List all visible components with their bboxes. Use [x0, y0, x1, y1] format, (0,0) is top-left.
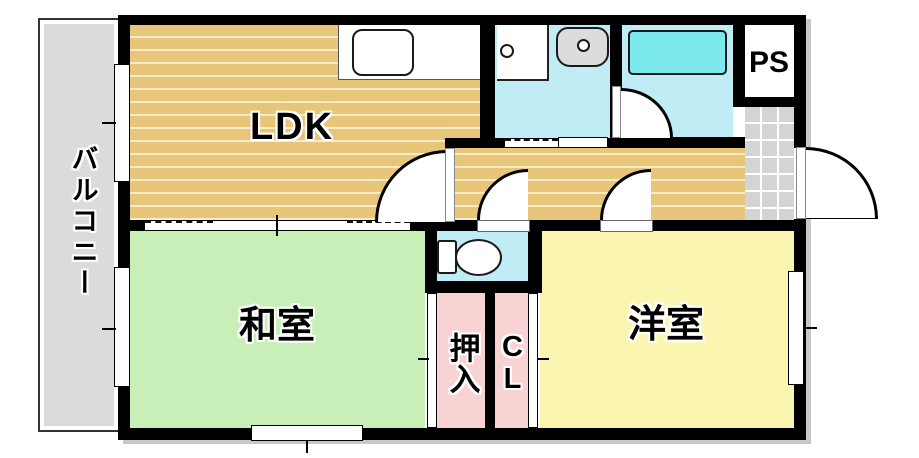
window-western-right — [788, 271, 804, 385]
ldk-label: LDK — [250, 108, 334, 146]
western-door-threshold — [600, 220, 653, 232]
entry-tile-floor — [745, 107, 794, 222]
wall-outer-bottom — [118, 428, 806, 440]
wall-oshiire-closet — [485, 293, 495, 428]
oshiire-sliding-tick — [418, 358, 429, 360]
window-japanese-left-tick — [102, 328, 116, 330]
entrance-door-leaf — [796, 147, 806, 219]
sliding-rail-left — [145, 221, 213, 230]
wall-outer-top — [118, 15, 806, 25]
washroom-rail-dashed — [505, 139, 558, 147]
kitchen-sink — [352, 29, 414, 76]
window-japanese-left — [114, 267, 130, 387]
ldk-door-leaf — [445, 148, 455, 222]
window-japanese-bottom — [251, 425, 363, 441]
wall-toilet-bottom — [425, 281, 542, 293]
sliding-rail-right — [347, 221, 410, 230]
western-room-label: 洋室 — [628, 306, 704, 344]
oshiire-label: 押入 — [447, 332, 478, 394]
wall-bathroom-bottom — [610, 137, 745, 148]
washing-machine-drain-icon — [500, 44, 514, 58]
closet-label: CL — [498, 331, 527, 395]
washbasin-faucet-icon — [577, 39, 590, 52]
closet-sliding-tick — [538, 358, 549, 360]
floor-plan-canvas: LDK 和室 洋室 PS 押入 CL バルコニー — [0, 0, 919, 458]
pipe-space-label: PS — [749, 48, 789, 78]
toilet-tank — [437, 240, 457, 274]
window-ldk-left-tick — [102, 122, 116, 124]
wall-bathroom-ps — [733, 15, 745, 107]
bathroom-door-leaf — [612, 86, 621, 138]
toilet-bowl — [455, 239, 502, 276]
opening-ldk-japanese — [213, 220, 347, 231]
entrance-door-swing — [806, 147, 878, 219]
washroom-sliding-door — [558, 137, 608, 148]
wall-ldk-washroom — [480, 25, 495, 148]
opening-ldk-japanese-tick — [276, 215, 278, 236]
japanese-room-label: 和室 — [239, 307, 315, 345]
bathtub — [628, 30, 727, 75]
window-ldk-left — [114, 64, 130, 182]
closet-sliding-door — [528, 293, 538, 428]
oshiire-sliding-door — [427, 293, 437, 428]
balcony-label: バルコニー — [69, 145, 96, 300]
window-japanese-bottom-tick — [306, 441, 308, 453]
window-western-right-tick — [804, 327, 817, 329]
wall-ps-bottom — [733, 97, 806, 107]
toilet-door-threshold — [477, 220, 530, 232]
wall-outer-right-upper — [794, 15, 806, 148]
